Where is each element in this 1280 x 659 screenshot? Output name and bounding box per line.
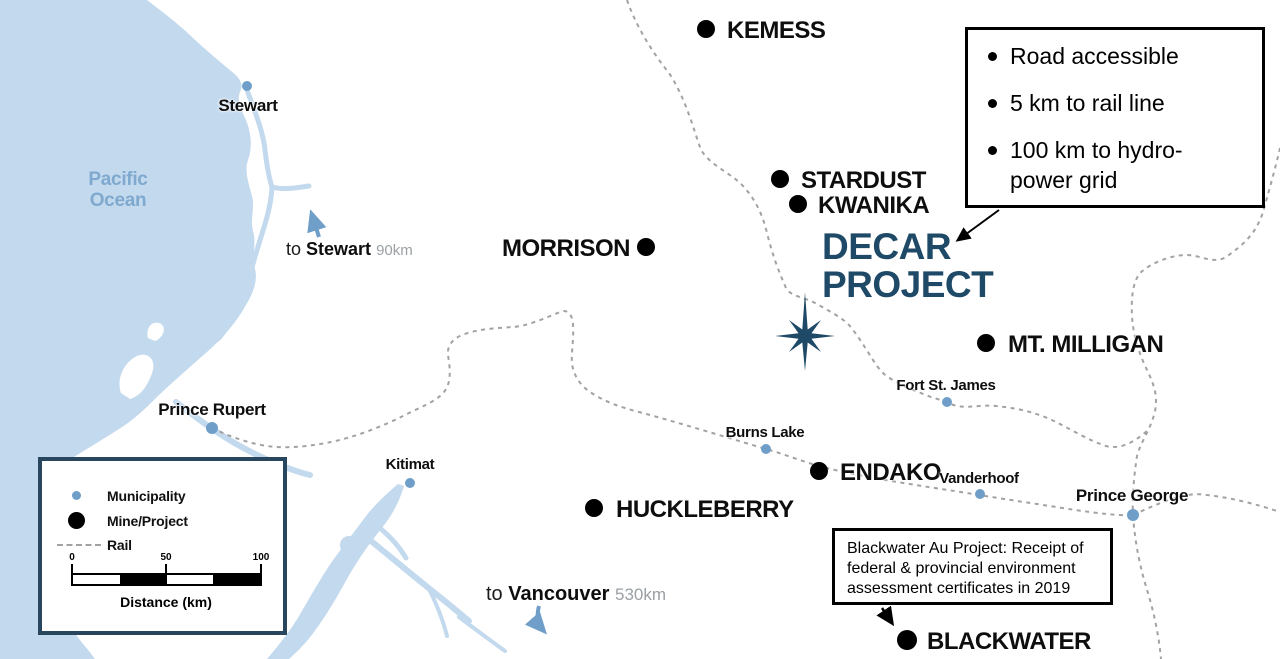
municipality-label-fort-st-james: Fort St. James bbox=[896, 377, 995, 394]
fort-st-james-dot bbox=[942, 397, 952, 407]
kwanika-dot bbox=[789, 195, 807, 213]
stewart-dot bbox=[242, 81, 252, 91]
municipality-label-prince-george: Prince George bbox=[1076, 486, 1188, 506]
lakes-and-rivers bbox=[371, 529, 505, 651]
scale-tick-50: 50 bbox=[160, 552, 171, 563]
legend-item-municipality: Municipality bbox=[107, 488, 186, 504]
map-canvas: Pacific Ocean KEMESS STARDUST KWANIKA MO… bbox=[0, 0, 1280, 659]
municipality-label-prince-rupert: Prince Rupert bbox=[158, 400, 266, 420]
legend-municipality-icon bbox=[72, 491, 81, 500]
route-place: Stewart bbox=[306, 239, 371, 259]
blackwater-dot bbox=[897, 630, 917, 650]
blackwater-callout-text: Blackwater Au Project: Receipt of federa… bbox=[847, 540, 1084, 597]
municipality-label-burns-lake: Burns Lake bbox=[726, 424, 805, 441]
scale-bar bbox=[71, 573, 262, 586]
bullet-icon bbox=[988, 146, 997, 155]
route-note-vancouver: to Vancouver 530km bbox=[486, 583, 666, 606]
kitimat-dot bbox=[405, 478, 415, 488]
legend-rail-icon bbox=[57, 544, 101, 546]
feature-text: 5 km to rail line bbox=[1010, 88, 1165, 118]
municipality-label-kitimat: Kitimat bbox=[386, 456, 435, 473]
feature-item: 5 km to rail line bbox=[988, 88, 1262, 118]
ocean-label-line2: Ocean bbox=[70, 190, 166, 211]
scale-bar-segment bbox=[120, 575, 167, 584]
bullet-icon bbox=[988, 99, 997, 108]
scale-caption: Distance (km) bbox=[120, 594, 212, 610]
scale-tick-100: 100 bbox=[253, 552, 270, 563]
feature-item: 100 km to hydro-power grid bbox=[988, 135, 1262, 195]
mine-label-kwanika: KWANIKA bbox=[818, 192, 929, 220]
route-place: Vancouver bbox=[508, 583, 609, 605]
map-legend: Municipality Mine/Project Rail 0 50 100 … bbox=[38, 457, 287, 635]
mine-label-huckleberry: HUCKLEBERRY bbox=[616, 496, 794, 524]
scale-bar-segment bbox=[213, 575, 260, 584]
blackwater-callout-arrow bbox=[882, 608, 892, 623]
prince-george-dot bbox=[1127, 509, 1139, 521]
decar-project-title: DECAR PROJECT bbox=[822, 228, 993, 304]
feature-item: Road accessible bbox=[988, 41, 1262, 71]
endako-dot bbox=[810, 462, 828, 480]
route-distance: 90km bbox=[376, 242, 413, 259]
decar-project-title-line1: DECAR bbox=[822, 228, 993, 266]
route-note-stewart: to Stewart 90km bbox=[286, 239, 413, 260]
municipality-label-stewart: Stewart bbox=[218, 96, 277, 116]
mine-label-stardust: STARDUST bbox=[801, 167, 926, 195]
decar-project-title-line2: PROJECT bbox=[822, 266, 993, 304]
burns-lake-dot bbox=[761, 444, 771, 454]
mine-label-blackwater: BLACKWATER bbox=[927, 628, 1091, 656]
vanderhoof-dot bbox=[975, 489, 985, 499]
legend-item-rail: Rail bbox=[107, 537, 132, 553]
route-distance: 530km bbox=[615, 585, 666, 604]
project-features-callout: Road accessible 5 km to rail line 100 km… bbox=[965, 27, 1265, 208]
ocean-label-line1: Pacific bbox=[70, 169, 166, 190]
huckleberry-dot bbox=[585, 499, 603, 517]
bullet-icon bbox=[988, 52, 997, 61]
blackwater-callout: Blackwater Au Project: Receipt of federa… bbox=[832, 528, 1113, 605]
prince-rupert-dot bbox=[206, 422, 218, 434]
mt-milligan-dot bbox=[977, 334, 995, 352]
lake bbox=[340, 536, 358, 554]
rail-south-line bbox=[1133, 515, 1161, 659]
mine-label-morrison: MORRISON bbox=[502, 235, 630, 263]
legend-item-mine: Mine/Project bbox=[107, 513, 188, 529]
kemess-dot bbox=[697, 20, 715, 38]
mine-label-mt-milligan: MT. MILLIGAN bbox=[1008, 331, 1163, 359]
scale-tick-0: 0 bbox=[69, 552, 75, 563]
to-stewart-arrow bbox=[312, 215, 319, 237]
legend-mine-icon bbox=[68, 512, 85, 529]
ocean-label: Pacific Ocean bbox=[70, 169, 166, 211]
feature-text: Road accessible bbox=[1010, 41, 1179, 71]
mine-label-kemess: KEMESS bbox=[727, 17, 825, 45]
feature-text: 100 km to hydro-power grid bbox=[1010, 135, 1215, 195]
mine-label-endako: ENDAKO bbox=[840, 459, 941, 487]
stardust-dot bbox=[771, 170, 789, 188]
to-vancouver-arrow bbox=[538, 606, 543, 630]
route-prefix: to bbox=[486, 583, 508, 605]
municipality-label-vanderhoof: Vanderhoof bbox=[939, 470, 1019, 487]
douglas-channel bbox=[267, 484, 404, 659]
morrison-dot bbox=[637, 238, 655, 256]
route-prefix: to bbox=[286, 239, 306, 259]
